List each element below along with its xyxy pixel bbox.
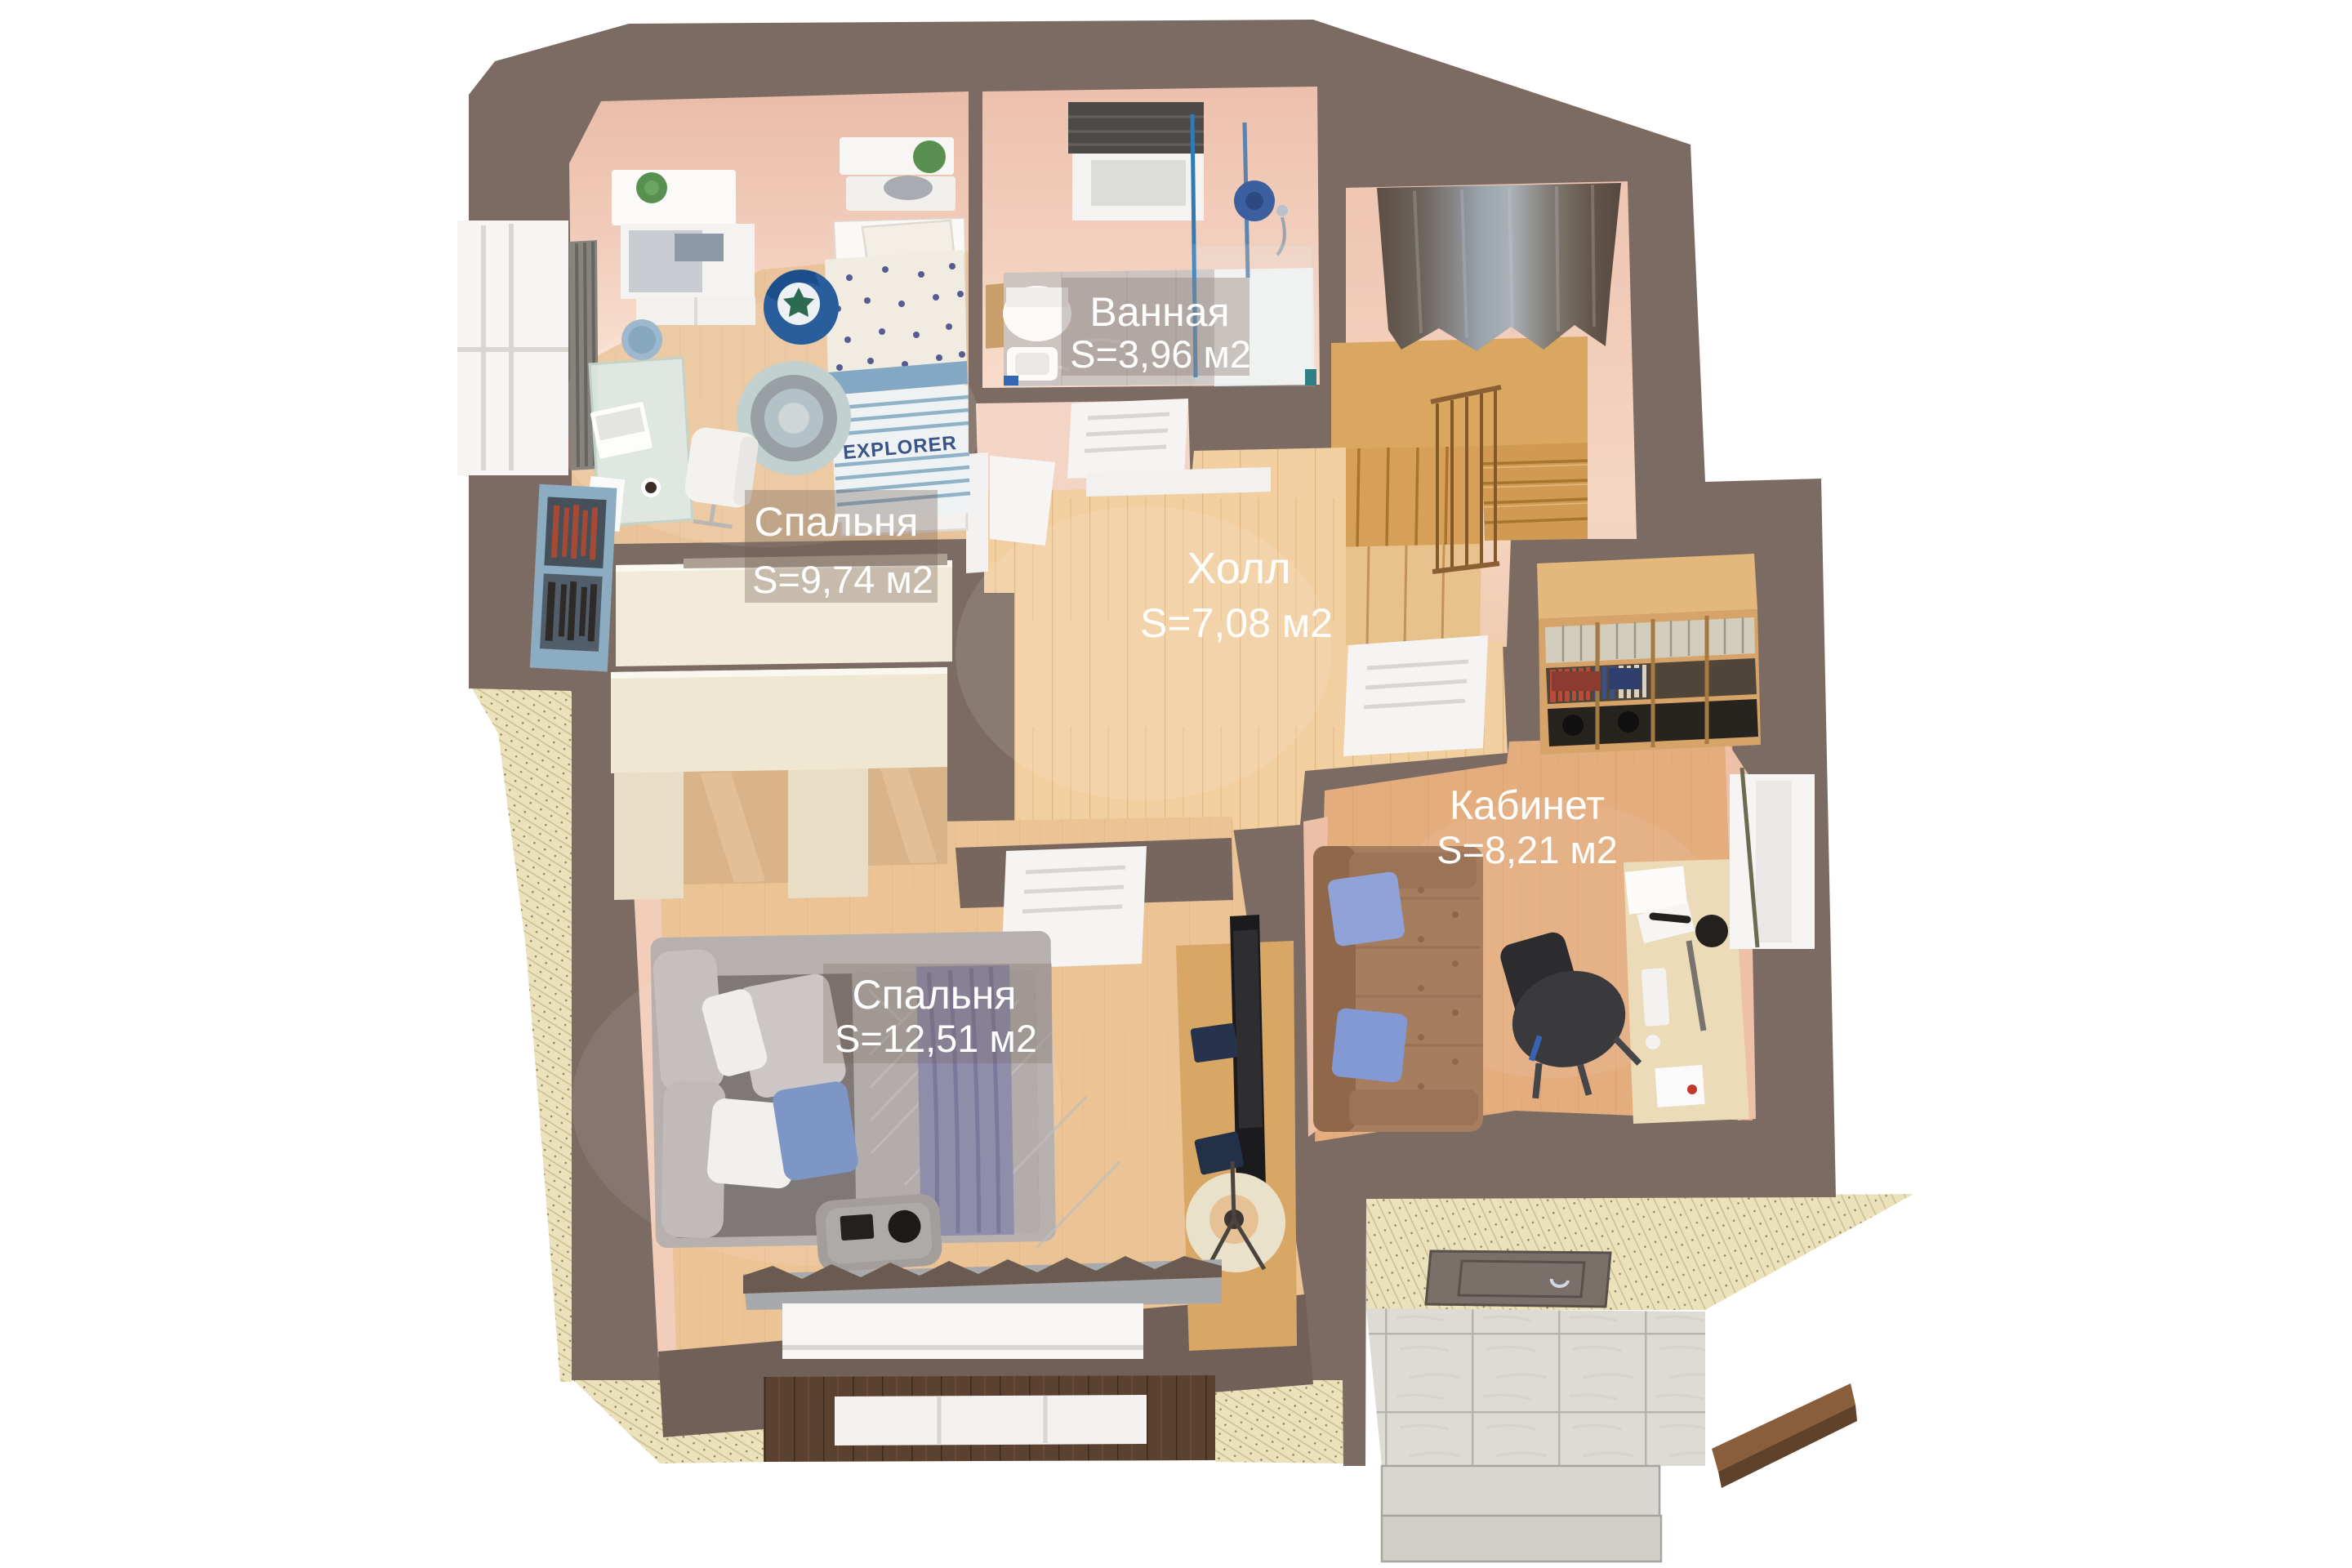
svg-text:Спальня: Спальня — [853, 972, 1017, 1018]
svg-text:S=3,96 м2: S=3,96 м2 — [1070, 332, 1251, 376]
svg-text:S=12,51 м2: S=12,51 м2 — [835, 1017, 1037, 1060]
svg-text:Холл: Холл — [1187, 544, 1290, 593]
svg-text:Ванная: Ванная — [1089, 289, 1229, 335]
svg-text:S=8,21 м2: S=8,21 м2 — [1437, 828, 1618, 871]
svg-text:Спальня: Спальня — [755, 499, 919, 545]
svg-text:Кабинет: Кабинет — [1450, 782, 1605, 828]
svg-text:S=9,74 м2: S=9,74 м2 — [752, 558, 933, 601]
svg-text:S=7,08 м2: S=7,08 м2 — [1140, 600, 1333, 646]
